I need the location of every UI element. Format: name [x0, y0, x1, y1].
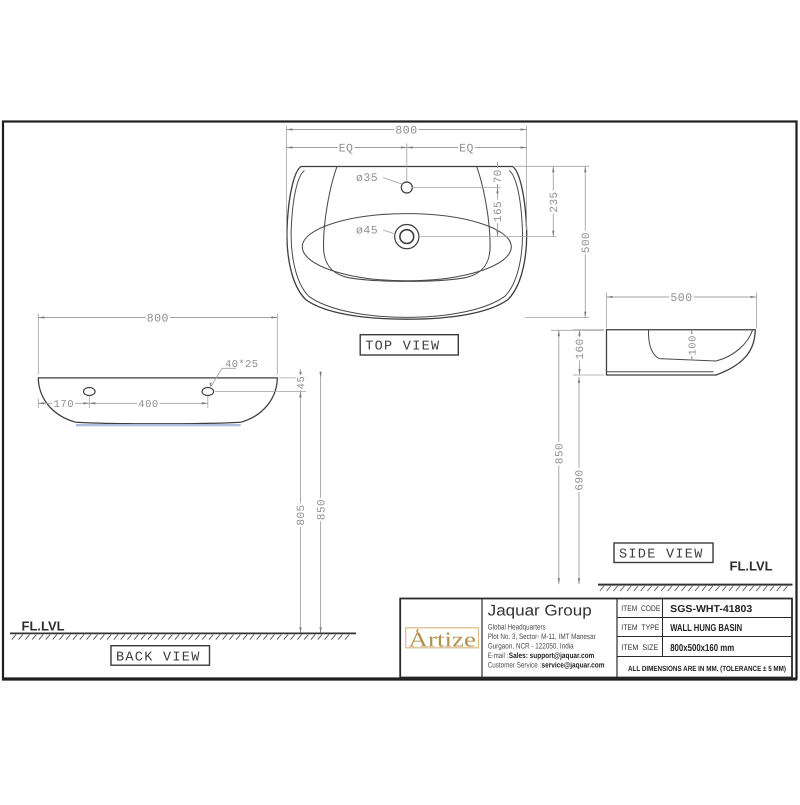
svg-text:400: 400: [138, 399, 158, 411]
svg-text:BACK VIEW: BACK VIEW: [116, 650, 201, 665]
svg-text:690: 690: [575, 469, 587, 490]
svg-text:Gurgaon, NCR - 122050, India: Gurgaon, NCR - 122050, India: [488, 641, 575, 650]
svg-text:45: 45: [296, 376, 308, 390]
svg-text:160: 160: [575, 338, 587, 359]
svg-text:Global Headquarters: Global Headquarters: [488, 622, 546, 631]
svg-text:service@jaquar.com: service@jaquar.com: [542, 660, 605, 669]
svg-text:ITEM CODE: ITEM CODE: [621, 604, 660, 613]
svg-text:170: 170: [54, 399, 74, 411]
svg-text:ø45: ø45: [356, 225, 378, 238]
svg-text:800: 800: [395, 124, 417, 137]
svg-text:500: 500: [581, 232, 593, 253]
svg-text:850: 850: [316, 499, 328, 520]
svg-text:Artize: Artize: [409, 628, 477, 652]
svg-text:ITEM TYPE: ITEM TYPE: [621, 623, 659, 632]
svg-text:EQ: EQ: [459, 142, 474, 155]
svg-text:165: 165: [493, 201, 505, 222]
svg-text:800x500x160 mm: 800x500x160 mm: [670, 643, 734, 654]
svg-text:70: 70: [493, 169, 505, 183]
svg-text:Plot No. 3, Sector- M-11, IMT: Plot No. 3, Sector- M-11, IMT Manesar: [488, 632, 596, 641]
svg-text:500: 500: [670, 292, 692, 305]
svg-text:ø35: ø35: [356, 172, 378, 185]
svg-text:SGS-WHT-41803: SGS-WHT-41803: [670, 604, 752, 615]
svg-text:Sales: support@jaquar.com: Sales: support@jaquar.com: [509, 651, 595, 660]
svg-text:WALL HUNG BASIN: WALL HUNG BASIN: [670, 623, 742, 634]
svg-text:235: 235: [549, 191, 561, 212]
svg-text:40*25: 40*25: [225, 359, 259, 371]
svg-text:ITEM SIZE: ITEM SIZE: [621, 643, 658, 652]
svg-text:850: 850: [555, 443, 567, 464]
svg-text:TOP VIEW: TOP VIEW: [365, 340, 440, 355]
svg-text:Jaquar Group: Jaquar Group: [488, 602, 592, 619]
svg-text:FL.LVL: FL.LVL: [730, 559, 773, 574]
svg-text:100: 100: [687, 335, 699, 355]
svg-text:FL.LVL: FL.LVL: [22, 619, 65, 634]
svg-text:805: 805: [296, 504, 308, 525]
svg-text:Customer Service :: Customer Service :: [488, 660, 542, 669]
svg-text:800: 800: [147, 312, 169, 325]
svg-text:E-mail :: E-mail :: [488, 651, 509, 660]
svg-text:SIDE VIEW: SIDE VIEW: [619, 548, 704, 563]
svg-text:ALL DIMENSIONS ARE IN MM. (TOL: ALL DIMENSIONS ARE IN MM. (TOLERANCE ± 5…: [628, 664, 786, 673]
svg-text:EQ: EQ: [339, 142, 354, 155]
